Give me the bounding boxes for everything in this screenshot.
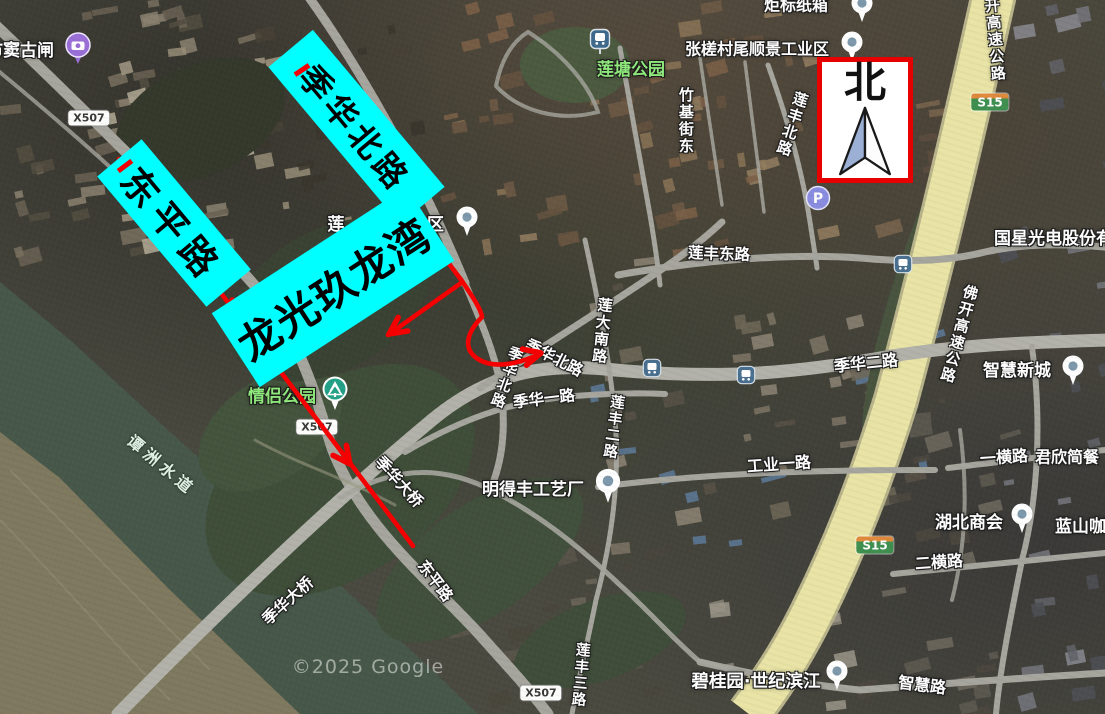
- annotation-longguang-jiulongwan-callout: 龙光玖龙湾: [212, 187, 454, 387]
- annotation-text: 龙光玖龙湾: [224, 202, 442, 373]
- north-compass-icon: [830, 106, 900, 178]
- annotation-text: 季华北路: [289, 53, 423, 200]
- north-label: 北: [844, 60, 886, 106]
- cyan-annotation-layer: 东平路季华北路龙光玖龙湾: [0, 0, 1105, 714]
- north-indicator: 北: [817, 57, 913, 183]
- annotation-text: 东平路: [110, 154, 238, 292]
- map-canvas[interactable]: 市窦古闸莲塘公园张槎村尾顺景工业区炬标纸箱竹基街东莲丰北路开高速公路莲丰东路国星…: [0, 0, 1105, 714]
- annotation-jihua-north-road-callout: 季华北路: [268, 30, 444, 224]
- annotation-dongping-road-callout: 东平路: [97, 139, 251, 307]
